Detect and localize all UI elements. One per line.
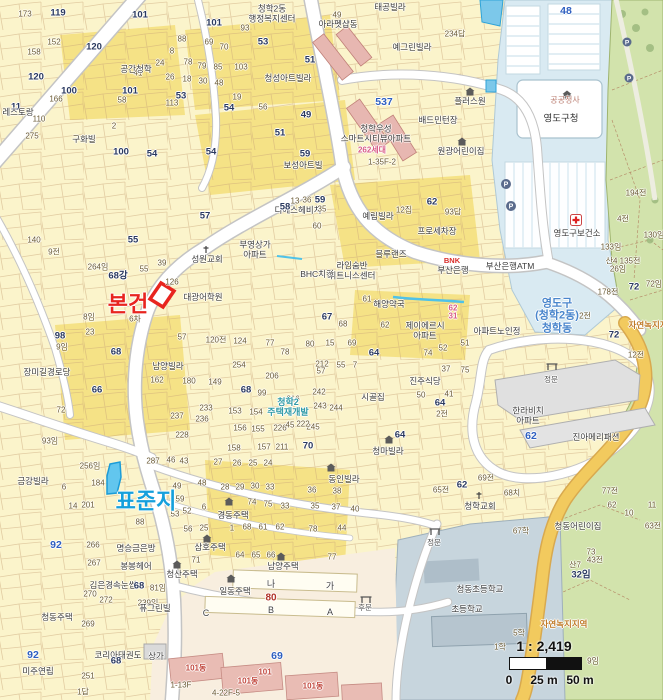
block-number: 68 <box>241 386 252 397</box>
building-label: 나 <box>267 579 275 589</box>
place-label: 청학2동 행정복지센터 <box>249 4 296 23</box>
parcel-number: 267 <box>87 560 100 569</box>
block-number: 92 <box>50 540 62 552</box>
block-number: 100 <box>61 87 77 98</box>
parcel-number: 12집 <box>396 207 412 216</box>
parcel-number: 228 <box>175 432 188 441</box>
parcel-number: 78 <box>184 59 193 68</box>
parcel-number: 61 <box>259 524 268 533</box>
block-number: 70 <box>303 442 314 453</box>
parcel-number: 57 <box>178 334 187 343</box>
parcel-number: 65 <box>252 552 261 561</box>
place-label: 블루랜즈 <box>375 250 406 260</box>
parcel-number: 26 <box>233 460 242 469</box>
block-number: 92 <box>27 650 39 662</box>
parcel-number: 79 <box>198 63 207 72</box>
parcel-number: 33 <box>266 484 275 493</box>
parcel-number: 45 <box>286 422 295 431</box>
parcel-number: 56 <box>259 104 268 113</box>
place-label: 레스토랑 <box>2 108 33 118</box>
block-number: 64 <box>395 431 406 442</box>
block-number: 100 <box>113 148 129 159</box>
parcel-number: 6 <box>62 484 66 493</box>
block-number: 51 <box>275 129 286 140</box>
parcel-number: 237 <box>170 413 183 422</box>
place-label: 경동주택 <box>217 511 248 521</box>
parcel-number: 275 <box>25 133 38 142</box>
parcel-number: 155 <box>251 426 264 435</box>
place-label: 구화빌 <box>72 135 95 145</box>
block-number: 54 <box>224 104 235 115</box>
parcel-number: 149 <box>208 379 221 388</box>
block-number: 55 <box>128 236 139 247</box>
parcel-number: 152 <box>47 39 60 48</box>
place-label: 대광어학원 <box>183 293 222 303</box>
parcel-number: 4-22F-5 <box>212 690 240 699</box>
parcel-number: 93답 <box>445 209 461 218</box>
place-label: 진주식당 <box>409 377 440 387</box>
place-label: 플러스원 <box>454 97 485 107</box>
parcel-number: 12전 <box>628 352 644 361</box>
parcel-number: 126 <box>165 279 178 288</box>
parcel-number: 63전 <box>645 523 661 532</box>
parcel-number: 38 <box>333 488 342 497</box>
parcel-number: 24 <box>264 460 273 469</box>
block-number: 62 <box>427 198 438 209</box>
parcel-number: 55 <box>140 266 149 275</box>
block-number: 54 <box>147 150 158 161</box>
map-scale: 1 : 2,419 0 25 m 50 m <box>470 636 640 694</box>
block-number: 51 <box>305 56 316 67</box>
parcel-number: 233 <box>199 405 212 414</box>
place-label: 진아메리패션 <box>573 433 620 443</box>
parcel-number: 74 <box>248 499 257 508</box>
parcel-number: 77 <box>266 340 275 349</box>
place-label: 원광어린이집 <box>438 147 485 157</box>
parcel-number: 67학 <box>513 528 529 537</box>
parcel-number: 234답 <box>445 31 466 40</box>
gate-label: 후문 <box>358 604 372 612</box>
parcel-number: 243 <box>313 403 326 412</box>
parcel-number: 62 <box>381 322 390 331</box>
place-label: 영도구청 <box>544 115 579 126</box>
parcel-number: 29 <box>236 484 245 493</box>
place-label: 봉봉헤어 <box>120 562 151 572</box>
district-label: 영도구 (청학2동) 청학동 <box>535 298 579 335</box>
place-label: 청동주택 <box>41 613 72 623</box>
place-label: 김은경속눈썹 <box>90 581 137 591</box>
block-number: 54 <box>206 148 217 159</box>
parcel-number: 37 <box>332 504 341 513</box>
place-label: 남양주택 <box>267 562 298 572</box>
parcel-number: 124 <box>233 338 246 347</box>
scale-tick-0: 0 <box>506 673 513 687</box>
place-label: 제이에르시 아파트 <box>405 321 444 340</box>
building-label: A <box>327 607 333 617</box>
parcel-number: 25 <box>249 460 258 469</box>
parcel-number: 80 <box>306 341 315 350</box>
parcel-number: 35 <box>311 503 320 512</box>
parcel-number: 78 <box>281 349 290 358</box>
scale-tick-50: 50 m <box>566 673 593 687</box>
map-labels-layer: 1731191011521581204112010016611110275레스토… <box>0 0 663 700</box>
parcel-number: 37 <box>442 366 451 375</box>
parcel-number: 40 <box>351 506 360 515</box>
place-label: 해양약국 <box>373 300 404 310</box>
parcel-number: 206 <box>265 373 278 382</box>
parcel-number: 158 <box>227 445 240 454</box>
parcel-number: 166 <box>49 96 62 105</box>
parcel-number: 39 <box>158 260 167 269</box>
place-label: 초등학교 <box>451 605 482 615</box>
parcel-number: 43전 <box>587 557 603 566</box>
block-number: 49 <box>301 111 312 122</box>
parcel-number: 153 <box>228 408 241 417</box>
scale-bar-black-segment <box>546 658 582 669</box>
place-label: 한라비치 아파트 <box>512 406 543 425</box>
place-label: 청산주택 <box>166 570 197 580</box>
block-number: 48 <box>560 6 572 18</box>
place-label: 부영상가 아파트 <box>239 240 270 259</box>
parcel-number: 36 <box>303 197 312 206</box>
parcel-number: 69전 <box>478 475 494 484</box>
parcel-number: 44 <box>338 525 347 534</box>
parcel-number: 270 <box>83 591 96 600</box>
scale-tick-25: 25 m <box>530 673 557 687</box>
parcel-number: 93임 <box>42 438 58 447</box>
parcel-number: 236 <box>195 416 208 425</box>
block-number: 101 <box>132 11 148 22</box>
parcel-number: 120전 <box>206 337 227 346</box>
cadastral-map: P P P P 17311910115215812041120100166111… <box>0 0 663 700</box>
block-number: 120 <box>28 73 44 84</box>
place-label: 장미길경로당 <box>24 368 71 378</box>
parcel-number: 256임 <box>80 463 101 472</box>
place-label: 청성아트빌라 <box>265 74 312 84</box>
block-number: 68 <box>134 582 145 593</box>
block-number: 68강 <box>108 272 127 283</box>
parcel-number: 254 <box>232 362 245 371</box>
place-label: 퓨그린빌 <box>139 604 170 614</box>
building-label: 101동 <box>303 683 324 692</box>
parcel-number: 77전 <box>602 488 618 497</box>
parcel-number: 158 <box>27 49 40 58</box>
parcel-number: 56 <box>184 526 193 535</box>
unit-count-label: 31 <box>449 313 458 322</box>
parcel-number: 251 <box>81 673 94 682</box>
place-label: 태공빌라 <box>374 3 405 13</box>
parcel-number: 8임 <box>83 314 95 323</box>
parcel-number: 133임 <box>601 244 622 253</box>
place-label: 청동어린이집 <box>555 522 602 532</box>
parcel-number: 113 <box>166 100 179 109</box>
parcel-number: 9임 <box>56 344 68 353</box>
place-label: 성원교회 <box>191 255 222 265</box>
building-label: 101동 <box>238 678 259 687</box>
parcel-number: 2전 <box>579 313 591 322</box>
place-label: 일동주택 <box>219 587 250 597</box>
block-number: 62 <box>457 481 468 492</box>
parcel-number: 1-35F-2 <box>368 159 396 168</box>
parcel-number: 15 <box>326 340 335 349</box>
parcel-number: 48 <box>215 80 224 89</box>
block-number: 59 <box>300 150 311 161</box>
place-label: 청마빌라 <box>372 447 403 457</box>
redevelopment-label: 청학2 주택재개발 <box>267 397 308 417</box>
parcel-number: 88 <box>136 519 145 528</box>
block-number: 72 <box>629 283 640 294</box>
parcel-number: 11 <box>648 502 656 511</box>
parcel-number: 59 <box>176 496 185 505</box>
parcel-number: 103 <box>234 64 247 73</box>
block-number: 64 <box>369 349 380 360</box>
parcel-number: 74 <box>424 350 433 359</box>
block-number: 72 <box>609 331 620 342</box>
parcel-number: 266 <box>86 542 99 551</box>
parcel-number: 99 <box>258 390 267 399</box>
place-label: 부산은행ATM <box>486 262 535 272</box>
block-number: 537 <box>375 97 393 109</box>
parcel-number: 69 <box>205 39 214 48</box>
block-number: 69 <box>271 651 283 663</box>
block-number: 58 <box>280 203 291 214</box>
parcel-number: 33 <box>281 503 290 512</box>
place-label: 삼호주택 <box>194 543 225 553</box>
building-label: 80 <box>265 592 276 603</box>
parcel-number: 184 <box>91 480 104 489</box>
parcel-number: 19 <box>233 94 242 103</box>
parcel-number: 287 <box>146 458 159 467</box>
parcel-number: 7 <box>353 362 357 371</box>
parcel-number: 41 <box>445 391 454 400</box>
parcel-number: 69 <box>348 340 357 349</box>
parcel-number: 46 <box>167 457 176 466</box>
parcel-number: 18 <box>183 76 192 85</box>
block-number: 53 <box>258 38 269 49</box>
parcel-number: 58 <box>118 97 127 106</box>
parcel-number: 51 <box>461 340 470 349</box>
parcel-number: 14 <box>69 503 78 512</box>
parcel-number: 2 <box>112 123 116 132</box>
place-label: 아파트노인정 <box>474 327 521 337</box>
parcel-number: 211 <box>276 444 289 453</box>
parcel-number: 269 <box>81 621 94 630</box>
parcel-number: 81임 <box>150 585 166 594</box>
building-label: 101 <box>258 669 271 678</box>
place-label: 배드민턴장 <box>418 116 457 126</box>
parcel-number: 180 <box>182 378 195 387</box>
block-number: 119 <box>50 9 65 20</box>
parcel-number: 6 <box>202 504 206 513</box>
block-number: 57 <box>200 212 211 223</box>
parcel-number: 110 <box>33 116 46 125</box>
block-number: 32임 <box>571 571 590 582</box>
place-label: 금강빌라 <box>17 477 48 487</box>
parcel-number: 140 <box>27 237 40 246</box>
parcel-number: 178전 <box>598 289 619 298</box>
place-label: 상가 <box>148 652 164 662</box>
parcel-number: 1 <box>230 525 234 534</box>
parcel-number: 68치 <box>504 490 520 499</box>
parcel-number: 222 <box>296 421 309 430</box>
place-label: 청학교회 <box>464 502 495 512</box>
parcel-number: 72 <box>57 407 66 416</box>
place-label: 동인빌라 <box>328 475 359 485</box>
unit-count-label: 262세대 <box>358 147 386 156</box>
parcel-number: 157 <box>257 444 270 453</box>
parcel-number: 9전 <box>48 249 60 258</box>
block-number: 66 <box>92 386 103 397</box>
block-number: 68 <box>111 657 122 668</box>
place-label: 프로세차장 <box>417 227 456 237</box>
place-label: 공공청사 <box>550 97 579 106</box>
place-label: 부산은행 <box>437 266 468 276</box>
parcel-number: 162 <box>150 377 163 386</box>
parcel-number: 48 <box>198 480 207 489</box>
block-number: 101 <box>206 19 222 30</box>
parcel-number: 52 <box>183 508 192 517</box>
place-label: 예그린빌라 <box>392 43 431 53</box>
parcel-number: 10 <box>625 510 634 519</box>
parcel-number: 55 <box>337 362 346 371</box>
parcel-number: 78 <box>309 526 318 535</box>
parcel-number: 62 <box>276 524 285 533</box>
place-label: 예림빌라 <box>362 212 393 222</box>
building-label: C <box>203 608 210 618</box>
building-label: 101동 <box>186 665 207 674</box>
parcel-number: 2전 <box>436 411 448 420</box>
parcel-number: 75 <box>461 367 470 376</box>
parcel-number: 264임 <box>88 264 109 273</box>
place-label: 명승금은방 <box>116 544 155 554</box>
parcel-number: 173 <box>18 11 31 20</box>
parcel-number: 36 <box>308 487 317 496</box>
place-label: 청동초등학교 <box>457 585 504 595</box>
parcel-number: 57 <box>317 368 326 377</box>
parcel-number: 65전 <box>433 487 449 496</box>
scale-ratio: 1 : 2,419 <box>499 638 589 654</box>
block-number: 120 <box>86 43 102 54</box>
parcel-number: 88 <box>178 36 187 45</box>
parcel-number: 68 <box>243 524 252 533</box>
place-label: 보성아트빌 <box>283 161 322 171</box>
zone-label: 자연녹지지역 <box>541 620 588 630</box>
bank-logo: BNK <box>444 257 460 265</box>
place-label: 영도구보건소 <box>554 229 601 239</box>
parcel-number: 8 <box>170 48 174 57</box>
block-number: 67 <box>322 313 333 324</box>
standard-annotation: 표준지 <box>116 490 177 515</box>
parcel-number: 72임 <box>646 281 662 290</box>
parcel-number: 71 <box>192 557 201 566</box>
parcel-number: 242 <box>312 389 325 398</box>
parcel-number: 1답 <box>77 689 89 698</box>
block-number: 98 <box>55 332 66 343</box>
parcel-number: 27 <box>214 459 223 468</box>
parcel-number: 62 <box>608 502 617 511</box>
parcel-number: 156 <box>233 425 246 434</box>
parcel-number: 26임 <box>610 266 626 275</box>
parcel-number: 154 <box>249 409 262 418</box>
parcel-number: 272 <box>99 597 112 606</box>
parcel-number: 43 <box>180 458 189 467</box>
parcel-number: 130임 <box>644 232 663 241</box>
parcel-number: 25 <box>200 525 209 534</box>
parcel-number: 23 <box>86 329 95 338</box>
parcel-number: 61 <box>363 296 372 305</box>
parcel-number: 50 <box>417 392 426 401</box>
parcel-number: 13 <box>291 198 300 207</box>
building-label: B <box>268 605 274 615</box>
parcel-number: 77 <box>328 554 337 563</box>
block-number: 68 <box>111 348 122 359</box>
parcel-number: 194전 <box>626 190 647 199</box>
parcel-number: 4전 <box>617 216 629 225</box>
place-label: 라임숨반 휘트니스센터 <box>329 261 376 280</box>
place-label: 남양빌라 <box>152 362 183 372</box>
zone-label: 자연녹지지역 <box>629 321 663 331</box>
place-label: 아라펫샵동 <box>318 20 357 30</box>
parcel-number: 60 <box>313 223 322 232</box>
parcel-number: 93 <box>241 25 250 34</box>
parcel-number: 64 <box>236 552 245 561</box>
gate-label: 정문 <box>544 376 558 384</box>
gate-label: 정문 <box>427 539 441 547</box>
parcel-number: 66 <box>267 552 276 561</box>
scale-bar <box>509 657 582 670</box>
parcel-number: 75 <box>264 501 273 510</box>
parcel-number: 30 <box>199 78 208 87</box>
parcel-number: 85 <box>214 64 223 73</box>
parcel-number: 1-13F <box>171 682 192 691</box>
subject-annotation: 본건 <box>108 293 148 318</box>
parcel-number: 24 <box>156 60 165 69</box>
parcel-number: 30 <box>251 483 260 492</box>
parcel-number: 28 <box>221 484 230 493</box>
block-number: 64 <box>435 399 446 410</box>
place-label: 시골집 <box>361 393 384 403</box>
place-label: 미주연립 <box>22 667 53 677</box>
parcel-number: 68 <box>339 321 348 330</box>
place-label: 공간청학 <box>120 65 151 75</box>
parcel-number: 26 <box>166 74 175 83</box>
parcel-number: 70 <box>220 44 229 53</box>
parcel-number: 52 <box>439 345 448 354</box>
building-label: 가 <box>326 581 334 591</box>
parcel-number: 35 <box>318 206 327 215</box>
block-number: 62 <box>525 431 537 443</box>
parcel-number: 244 <box>329 405 342 414</box>
parcel-number: 201 <box>81 502 94 511</box>
place-label: 청학우성 스마트시티뷰아파트 <box>341 124 411 143</box>
